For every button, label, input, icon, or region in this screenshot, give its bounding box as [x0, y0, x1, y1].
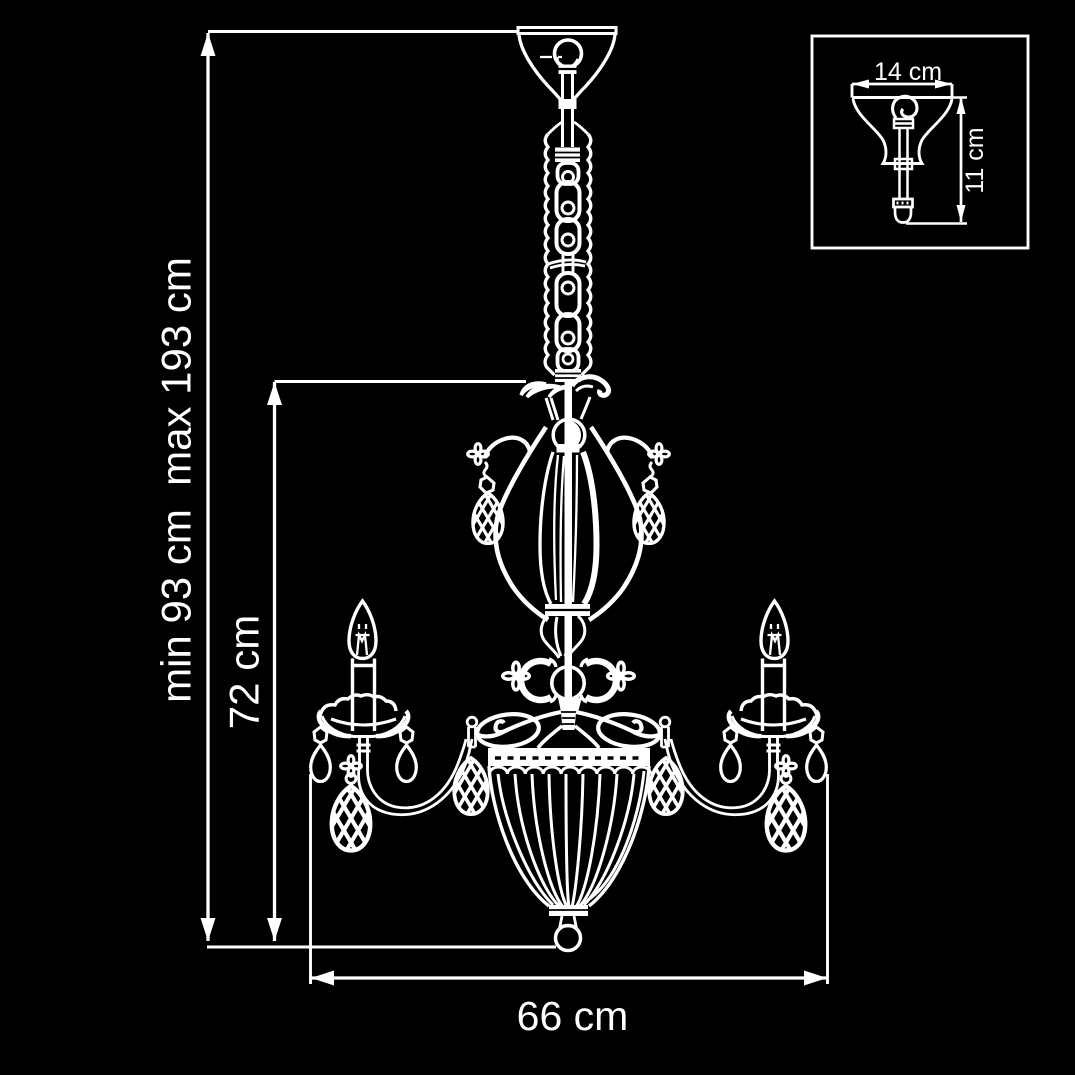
- svg-text:66 cm: 66 cm: [517, 993, 629, 1039]
- svg-text:72 cm: 72 cm: [221, 615, 268, 729]
- svg-text:14 cm: 14 cm: [874, 58, 942, 86]
- svg-text:11 cm: 11 cm: [961, 127, 989, 193]
- svg-text:min 93 cm max 193 cm: min 93 cm max 193 cm: [153, 257, 200, 703]
